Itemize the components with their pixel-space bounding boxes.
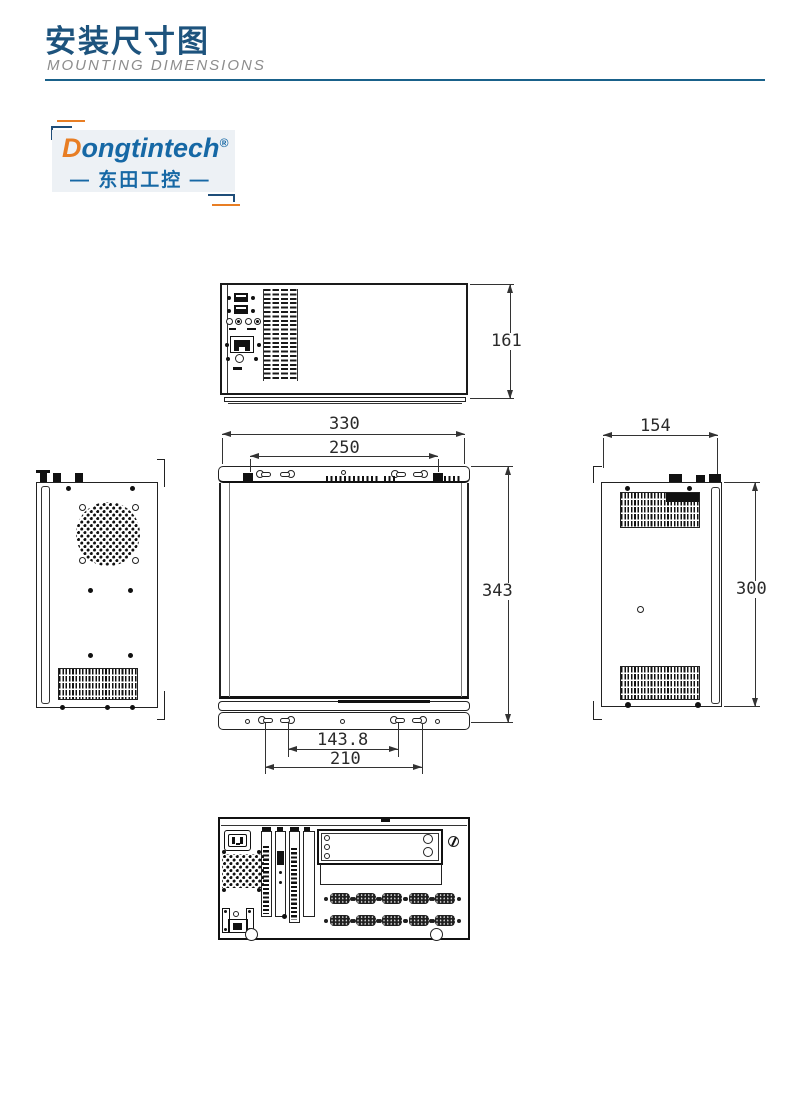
- dim-arrow: [456, 431, 465, 437]
- thumb-screw: [709, 474, 721, 482]
- mounting-flange-tab: [157, 459, 165, 487]
- logo-corner-accent-orange-bottom: [212, 204, 240, 206]
- mounting-flange-tab: [593, 701, 602, 720]
- dim-ext-line: [222, 438, 223, 464]
- screw-hole: [251, 296, 255, 300]
- power-rocker-inner: [233, 923, 242, 930]
- screw-hole: [227, 309, 231, 313]
- dim-label-top-mount-spacing: 250: [327, 440, 362, 457]
- dim-line: [265, 767, 422, 768]
- screw-hole: [227, 296, 231, 300]
- expansion-card-bracket: [291, 848, 297, 920]
- screw-hole: [248, 910, 251, 913]
- screw-hole: [625, 486, 630, 491]
- usb-port-slot: [236, 295, 246, 297]
- top-connector-mark: [696, 475, 705, 482]
- side-vent-grille: [620, 666, 700, 700]
- top-chassis-body: [219, 483, 469, 699]
- dim-arrow: [250, 453, 259, 459]
- mounting-clip: [243, 473, 253, 481]
- lan-port-notch: [239, 347, 245, 351]
- logo-brand-rest: ongtintech: [82, 133, 220, 163]
- bottom-edge-mark: [338, 700, 430, 703]
- screw-hole: [637, 606, 644, 613]
- screw-hole: [224, 910, 227, 913]
- fan-screw-hole: [79, 504, 86, 511]
- dim-ext-line: [422, 723, 423, 774]
- db9-serial-port: [356, 915, 376, 926]
- dim-arrow: [505, 714, 511, 723]
- db9-serial-port: [330, 893, 350, 904]
- ac-inlet-pin: [236, 843, 240, 845]
- front-vent-grille: [263, 289, 298, 381]
- audio-jack-pin: [256, 320, 259, 323]
- mounting-flange-tab: [157, 691, 165, 720]
- screw-hole: [88, 588, 93, 593]
- slot-connector: [277, 851, 284, 865]
- power-label-mark: [233, 367, 242, 370]
- fan-screw-hole: [132, 557, 139, 564]
- dim-line: [250, 456, 438, 457]
- mounting-clip: [433, 473, 443, 481]
- dim-label-bottom-mount-inner: 143.8: [315, 732, 370, 749]
- logo-dash-right: —: [190, 170, 211, 191]
- db9-serial-port: [356, 893, 376, 904]
- body-inner-line: [229, 483, 230, 697]
- front-base-strip: [224, 397, 466, 402]
- screw-hole: [225, 343, 229, 347]
- screw-hole: [687, 486, 692, 491]
- audio-label-mark: [229, 328, 236, 330]
- top-connector-mark: [75, 473, 83, 482]
- keyhole-slot: [413, 470, 428, 478]
- logo-dash-left: —: [70, 170, 91, 191]
- dim-ext-line: [398, 723, 399, 757]
- dim-arrow: [507, 284, 513, 293]
- side-rail: [41, 486, 50, 704]
- page-subtitle: MOUNTING DIMENSIONS: [47, 57, 266, 74]
- front-base-line: [228, 403, 462, 404]
- page-title: 安装尺寸图: [45, 16, 210, 61]
- dim-arrow: [505, 466, 511, 475]
- io-hole-large: [423, 834, 433, 844]
- screw-hole: [279, 871, 282, 874]
- audio-jack-icon: [245, 318, 252, 325]
- screw-hole: [341, 470, 346, 475]
- switch-screw: [233, 911, 239, 917]
- top-connector-mark: [669, 474, 682, 482]
- ac-inlet-pin: [240, 837, 243, 844]
- db9-serial-port: [409, 915, 429, 926]
- rear-connector-marks: [384, 476, 396, 482]
- logo-brand-text: Dongtintech®: [62, 133, 228, 164]
- dim-arrow: [603, 432, 612, 438]
- screw-hole: [435, 719, 440, 724]
- io-hole-large: [423, 847, 433, 857]
- rear-top-tick: [381, 818, 390, 822]
- dim-label-overall-width: 330: [327, 416, 362, 433]
- screw-hole: [257, 343, 261, 347]
- ac-inlet-inner: [228, 834, 247, 847]
- top-connector-mark: [53, 473, 61, 482]
- rear-connector-marks: [326, 476, 378, 482]
- body-inner-line: [461, 483, 462, 697]
- dim-arrow: [752, 698, 758, 707]
- screw-hole: [128, 588, 133, 593]
- card-cage-opening: [320, 864, 442, 885]
- screw-hole: [60, 705, 65, 710]
- dim-arrow: [222, 431, 231, 437]
- expansion-card-bracket: [263, 846, 269, 914]
- screw-hole: [695, 702, 701, 708]
- fan-screw-hole: [132, 504, 139, 511]
- expansion-slot: [303, 831, 315, 917]
- screw-hole: [222, 888, 226, 892]
- dim-arrow: [413, 764, 422, 770]
- fan-grille: [76, 502, 140, 566]
- dim-line: [603, 435, 718, 436]
- rear-connector-marks: [444, 476, 460, 482]
- ac-inlet-pin: [232, 837, 235, 844]
- dim-ext-line: [464, 438, 465, 464]
- dim-ext-line: [250, 459, 251, 472]
- screw-hole: [222, 850, 226, 854]
- db9-serial-port: [330, 915, 350, 926]
- logo-brand-initial: D: [62, 133, 82, 163]
- header-rule: [45, 79, 765, 81]
- screw-hole: [88, 653, 93, 658]
- side-vent-grille: [58, 668, 138, 700]
- screw-hole: [226, 357, 230, 361]
- dim-label-overall-depth: 343: [480, 583, 515, 600]
- usb-port-slot: [236, 307, 246, 309]
- screw-hole: [282, 914, 287, 919]
- screw-hole: [128, 653, 133, 658]
- db9-serial-port: [435, 915, 455, 926]
- logo-corner-bracket-bottom: [208, 194, 235, 202]
- mounting-flange-tab: [593, 466, 602, 483]
- chassis-foot-hole: [245, 928, 258, 941]
- io-hole: [324, 844, 330, 850]
- keyhole-slot: [412, 716, 427, 724]
- mounting-dimensions-page: 安装尺寸图 MOUNTING DIMENSIONS Dongtintech® —…: [0, 0, 790, 1101]
- dim-label-side-height: 300: [734, 581, 769, 598]
- screw-hole: [224, 928, 227, 931]
- io-hole: [324, 853, 330, 859]
- screw-hole: [245, 719, 250, 724]
- io-hole: [324, 835, 330, 841]
- db9-serial-port: [382, 893, 402, 904]
- dim-arrow: [389, 746, 398, 752]
- dim-ext-line: [438, 459, 439, 472]
- dim-arrow: [752, 482, 758, 491]
- vent-dark-patch: [666, 493, 699, 502]
- audio-jack-pin: [237, 320, 240, 323]
- front-panel-divider: [227, 285, 228, 393]
- screw-hole: [130, 705, 135, 710]
- keyhole-slot: [280, 470, 295, 478]
- audio-label-mark: [247, 328, 256, 330]
- logo-cn-text: — 东田工控 —: [70, 165, 211, 192]
- dim-arrow: [429, 453, 438, 459]
- audio-jack-icon: [226, 318, 233, 325]
- fan-screw-hole: [79, 557, 86, 564]
- db9-serial-port: [409, 893, 429, 904]
- dim-arrow: [507, 390, 513, 399]
- screw-hole: [254, 357, 258, 361]
- registered-mark: ®: [219, 136, 228, 150]
- rear-vent-grille: [222, 854, 264, 888]
- dim-label-bottom-mount-outer: 210: [328, 751, 363, 768]
- screw-hole: [105, 705, 110, 710]
- db9-serial-port: [382, 915, 402, 926]
- dim-arrow: [265, 764, 274, 770]
- screw-hole: [66, 486, 71, 491]
- rear-top-edge-line: [221, 825, 467, 826]
- db9-serial-port: [435, 893, 455, 904]
- power-button-icon: [235, 354, 244, 363]
- screw-hole: [251, 309, 255, 313]
- dim-line: [222, 434, 465, 435]
- screw-hole: [625, 702, 631, 708]
- screw-hole: [279, 881, 282, 884]
- expansion-slot: [275, 831, 286, 917]
- dim-label-front-height: 161: [489, 333, 524, 350]
- screw-hole: [340, 719, 345, 724]
- side-rail: [711, 487, 720, 704]
- io-panel-inner: [321, 833, 439, 861]
- thumb-screw: [40, 473, 47, 482]
- dim-label-side-width: 154: [638, 418, 673, 435]
- dim-ext-line: [603, 438, 604, 468]
- chassis-foot-hole: [430, 928, 443, 941]
- dim-arrow: [288, 746, 297, 752]
- logo-cn-name: 东田工控: [98, 170, 182, 191]
- logo-corner-accent-orange-top: [57, 120, 85, 122]
- front-chassis-outline: [220, 283, 468, 395]
- keyhole-slot: [256, 470, 271, 478]
- screw-hole: [130, 486, 135, 491]
